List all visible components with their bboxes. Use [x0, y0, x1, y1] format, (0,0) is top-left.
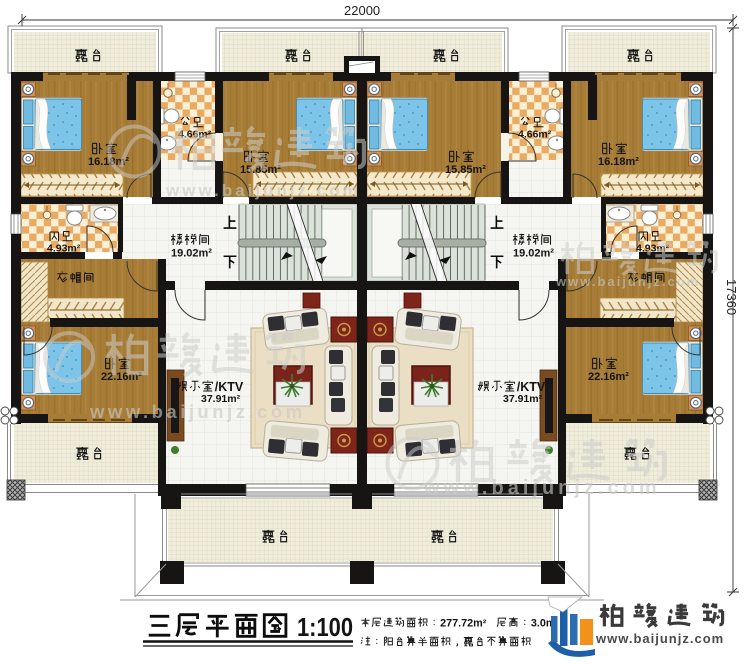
svg-text:www.baijunjz.com: www.baijunjz.com	[89, 401, 306, 422]
svg-text:37.91m²: 37.91m²	[503, 393, 543, 405]
svg-text:www.baijunjz.com: www.baijunjz.com	[555, 274, 700, 289]
svg-text:www.baijunjz.com: www.baijunjz.com	[423, 477, 661, 499]
svg-text:4.66m²: 4.66m²	[518, 129, 552, 141]
svg-text:22.16m²: 22.16m²	[588, 371, 629, 383]
svg-text:19.02m²: 19.02m²	[171, 248, 212, 260]
svg-text:4.93m²: 4.93m²	[47, 243, 81, 255]
svg-text:277.72m²: 277.72m²	[440, 617, 487, 629]
svg-text:www.baijunjz.com: www.baijunjz.com	[595, 631, 724, 646]
svg-text:/KTV: /KTV	[517, 380, 546, 394]
svg-text:15.85m²: 15.85m²	[445, 164, 486, 176]
svg-text:1:100: 1:100	[297, 612, 353, 642]
svg-text:/KTV: /KTV	[215, 380, 244, 394]
svg-text:www.baijunjz.com: www.baijunjz.com	[165, 181, 361, 200]
svg-text:19.02m²: 19.02m²	[513, 248, 554, 260]
svg-text:16.18m²: 16.18m²	[598, 156, 639, 168]
svg-text:17360: 17360	[724, 279, 739, 315]
svg-text:22000: 22000	[344, 3, 380, 18]
